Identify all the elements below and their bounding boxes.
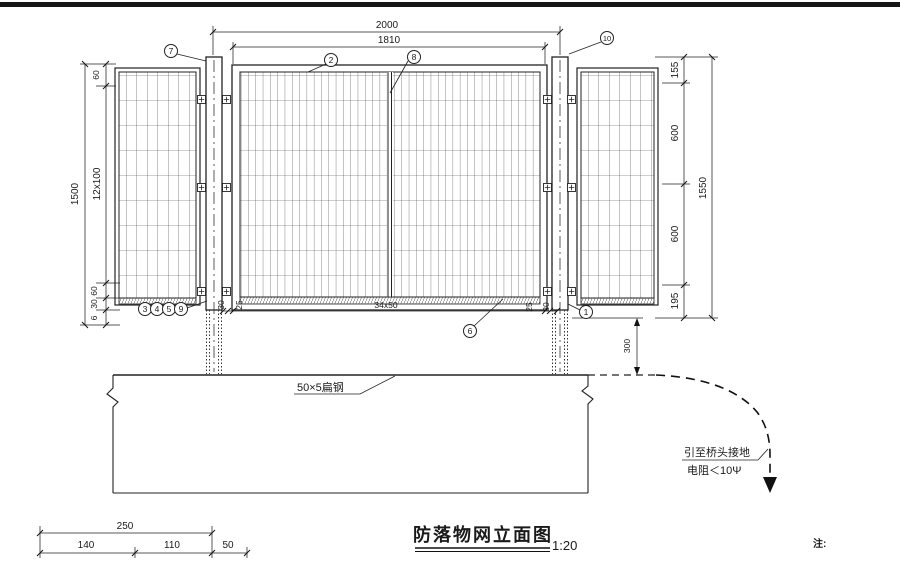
svg-text:7: 7 (169, 46, 174, 56)
dim-left-60-top: 60 (91, 70, 101, 80)
dim-600-b: 600 (670, 225, 681, 242)
grounding-text-2: 电阻＜10Ψ (687, 464, 741, 477)
dim-rail-30l: 30 (216, 300, 226, 310)
dims-footing: 250 140 110 50 (37, 521, 250, 558)
callout-1: 1 (568, 304, 593, 319)
left-mesh-panel (115, 68, 200, 305)
dim-rail-34x50: 34x50 (374, 300, 397, 310)
dims-top: 2000 1810 (213, 20, 560, 64)
slab-right-break (582, 375, 593, 493)
dim-110: 110 (164, 540, 180, 551)
svg-text:9: 9 (179, 304, 184, 314)
drawing-title: 防落物网立面图 (413, 524, 553, 545)
dim-155: 155 (670, 61, 681, 78)
right-post (552, 57, 568, 374)
dim-rail-25r: 25 (524, 302, 534, 312)
dims-left: 1500 60 12x100 60 30 6 (70, 61, 120, 328)
flat-steel-label: 50×5扁钢 (297, 381, 344, 394)
dim-1810: 1810 (378, 35, 401, 46)
svg-text:2: 2 (329, 55, 334, 65)
svg-text:6: 6 (468, 326, 473, 336)
svg-text:8: 8 (412, 52, 417, 62)
callout-7: 7 (165, 45, 207, 62)
svg-text:10: 10 (603, 34, 611, 43)
title-block: 防落物网立面图 1:20 (413, 524, 577, 553)
grounding-lead: 引至桥头接地 电阻＜10Ψ (656, 375, 777, 493)
main-mesh-panel (232, 65, 547, 310)
left-post (206, 57, 222, 374)
dim-250: 250 (117, 521, 134, 532)
grounding-arrow-icon (763, 477, 777, 493)
svg-text:1: 1 (584, 307, 589, 317)
dim-embed-300: 300 (572, 318, 643, 375)
dim-left-6: 6 (89, 315, 99, 320)
svg-text:3: 3 (143, 304, 148, 314)
dim-195: 195 (670, 292, 681, 309)
dim-600-a: 600 (670, 124, 681, 141)
bridge-deck-slab (107, 375, 656, 493)
callout-10: 10 (569, 32, 614, 55)
dim-rail-30r: 30 (541, 302, 551, 312)
dim-left-60-bottom: 60 (89, 286, 99, 296)
svg-text:4: 4 (155, 304, 160, 314)
note-label: 注: (813, 537, 826, 550)
right-panel-bottom-rail (581, 298, 654, 304)
sheet-border-band (0, 2, 900, 7)
svg-text:5: 5 (167, 304, 172, 314)
elevation-drawing: 引至桥头接地 电阻＜10Ψ 50×5扁钢 2000 1810 (0, 0, 900, 562)
right-mesh-panel (577, 68, 658, 305)
cad-sheet: 引至桥头接地 电阻＜10Ψ 50×5扁钢 2000 1810 (0, 0, 900, 562)
dim-140: 140 (78, 540, 95, 551)
flat-steel-callout: 50×5扁钢 (294, 376, 395, 394)
dim-2000: 2000 (376, 20, 399, 31)
dim-rail-25l: 25 (234, 300, 244, 310)
dims-right: 155 600 600 195 1550 (655, 54, 718, 321)
grounding-text-1: 引至桥头接地 (684, 445, 750, 459)
dim-300: 300 (622, 339, 632, 353)
slab-left-break (107, 375, 118, 493)
dim-1500: 1500 (70, 182, 81, 205)
drawing-scale: 1:20 (552, 538, 577, 553)
dim-left-30: 30 (89, 299, 99, 309)
dim-12x100: 12x100 (92, 167, 103, 200)
grounding-dashed-curve (656, 375, 770, 477)
dim-1550: 1550 (698, 176, 709, 199)
dim-50: 50 (222, 540, 234, 551)
